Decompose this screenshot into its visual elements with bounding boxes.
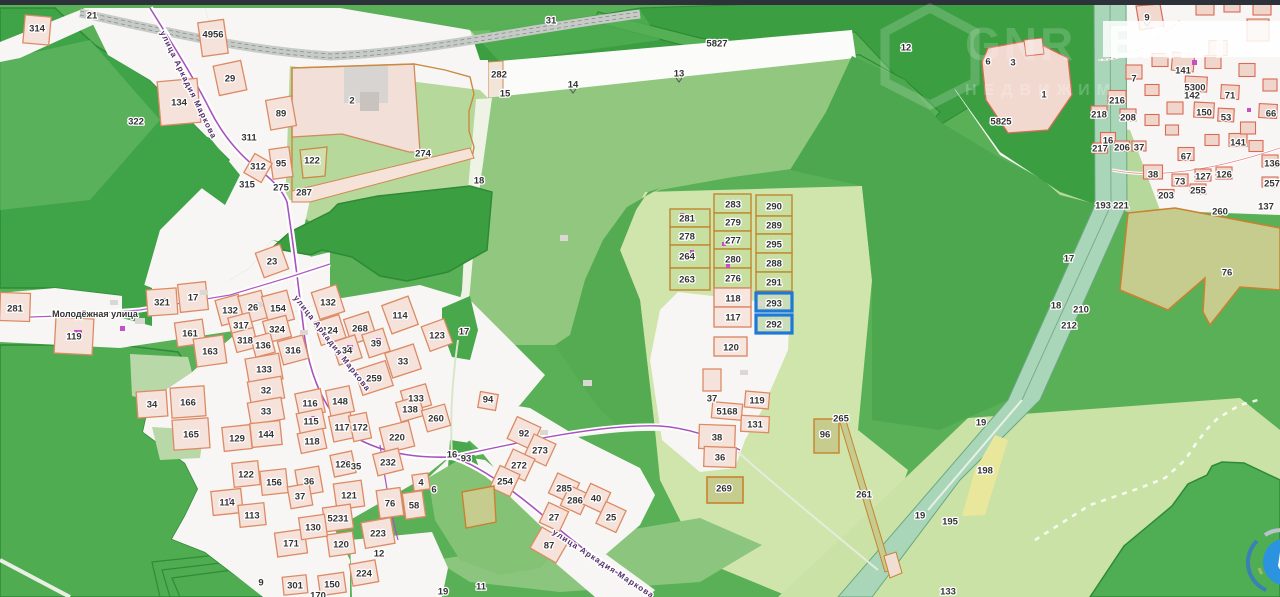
- svg-text:127: 127: [1195, 172, 1211, 183]
- svg-text:316: 316: [285, 346, 301, 357]
- svg-text:15: 15: [500, 89, 511, 100]
- svg-text:311: 311: [241, 133, 257, 144]
- svg-text:141: 141: [1230, 138, 1247, 149]
- svg-text:134: 134: [171, 98, 188, 109]
- svg-text:121: 121: [341, 491, 358, 502]
- svg-text:166: 166: [180, 398, 196, 409]
- svg-text:118: 118: [304, 437, 319, 448]
- svg-text:93: 93: [461, 454, 472, 465]
- svg-text:255: 255: [1190, 186, 1207, 197]
- svg-text:36: 36: [304, 477, 315, 488]
- svg-text:129: 129: [229, 434, 245, 445]
- svg-text:136: 136: [255, 341, 271, 352]
- svg-text:137: 137: [1258, 202, 1274, 213]
- svg-text:150: 150: [1196, 108, 1212, 119]
- svg-text:26: 26: [248, 303, 259, 314]
- svg-text:67: 67: [1181, 152, 1192, 163]
- svg-text:287: 287: [296, 188, 312, 199]
- svg-text:210: 210: [1073, 305, 1089, 316]
- svg-text:5231: 5231: [327, 514, 349, 525]
- svg-text:265: 265: [833, 414, 850, 425]
- svg-text:276: 276: [725, 274, 741, 285]
- svg-text:17: 17: [188, 293, 199, 304]
- svg-text:261: 261: [856, 490, 873, 501]
- svg-text:38: 38: [1148, 170, 1159, 181]
- svg-text:73: 73: [1175, 177, 1186, 188]
- svg-text:170: 170: [310, 591, 326, 597]
- svg-text:324: 324: [269, 325, 286, 336]
- svg-text:171: 171: [283, 539, 300, 550]
- svg-text:66: 66: [1266, 109, 1277, 120]
- svg-text:53: 53: [1221, 113, 1232, 124]
- svg-text:96: 96: [820, 430, 831, 441]
- svg-text:165: 165: [183, 430, 200, 441]
- svg-text:EALT: EALT: [1108, 16, 1237, 68]
- svg-text:317: 317: [233, 321, 249, 332]
- svg-text:172: 172: [352, 423, 368, 434]
- svg-text:130: 130: [305, 523, 321, 534]
- svg-text:114: 114: [392, 311, 408, 322]
- svg-text:132: 132: [222, 306, 238, 317]
- svg-text:131: 131: [747, 420, 764, 431]
- svg-text:203: 203: [1158, 191, 1174, 202]
- svg-text:17: 17: [1064, 254, 1075, 265]
- svg-text:156: 156: [266, 478, 282, 489]
- svg-text:5825: 5825: [990, 117, 1012, 128]
- svg-text:126: 126: [335, 460, 351, 471]
- svg-text:291: 291: [766, 278, 783, 289]
- svg-text:221: 221: [1113, 201, 1130, 212]
- svg-text:281: 281: [7, 304, 24, 315]
- svg-text:133: 133: [408, 394, 424, 405]
- svg-text:269: 269: [716, 484, 732, 495]
- svg-text:25: 25: [606, 513, 617, 524]
- svg-text:13: 13: [674, 69, 685, 80]
- svg-text:218: 218: [1091, 110, 1107, 121]
- svg-text:19: 19: [976, 418, 987, 429]
- svg-text:148: 148: [332, 397, 348, 408]
- svg-text:315: 315: [239, 180, 256, 191]
- svg-text:НЕДВИЖИМ: НЕДВИЖИМ: [965, 82, 1117, 99]
- svg-text:272: 272: [511, 461, 527, 472]
- svg-text:114: 114: [219, 498, 235, 509]
- svg-text:7: 7: [1131, 74, 1136, 85]
- svg-text:289: 289: [766, 221, 782, 232]
- svg-text:318: 318: [237, 336, 253, 347]
- svg-text:11: 11: [476, 582, 487, 593]
- svg-text:264: 264: [679, 252, 696, 263]
- svg-text:161: 161: [182, 329, 199, 340]
- svg-text:94: 94: [483, 395, 494, 406]
- svg-text:31: 31: [546, 16, 557, 27]
- svg-text:120: 120: [333, 540, 349, 551]
- svg-text:278: 278: [679, 232, 695, 243]
- svg-text:18: 18: [1051, 301, 1062, 312]
- svg-text:37: 37: [707, 394, 718, 405]
- svg-text:119: 119: [749, 396, 764, 407]
- svg-text:38: 38: [712, 433, 723, 444]
- svg-text:217: 217: [1092, 144, 1108, 155]
- svg-text:301: 301: [287, 581, 304, 592]
- svg-text:293: 293: [766, 299, 782, 310]
- svg-text:285: 285: [556, 484, 573, 495]
- svg-text:314: 314: [29, 24, 46, 35]
- svg-text:198: 198: [977, 466, 993, 477]
- svg-text:123: 123: [429, 331, 445, 342]
- svg-text:92: 92: [519, 429, 530, 440]
- svg-text:35: 35: [351, 462, 362, 473]
- svg-text:76: 76: [385, 499, 396, 510]
- svg-text:282: 282: [491, 70, 507, 81]
- svg-text:29: 29: [225, 74, 236, 85]
- svg-text:40: 40: [591, 494, 602, 505]
- svg-text:12: 12: [901, 43, 912, 54]
- svg-text:87: 87: [544, 541, 555, 552]
- svg-text:321: 321: [154, 298, 171, 309]
- svg-text:126: 126: [1216, 170, 1232, 181]
- svg-text:5168: 5168: [716, 407, 737, 418]
- svg-text:122: 122: [238, 470, 254, 481]
- svg-text:Молодёжная улица: Молодёжная улица: [52, 309, 139, 319]
- svg-text:132: 132: [320, 298, 336, 309]
- svg-text:89: 89: [276, 109, 287, 120]
- svg-text:95: 95: [276, 159, 287, 170]
- svg-text:257: 257: [1264, 179, 1280, 190]
- svg-text:34: 34: [147, 400, 158, 411]
- svg-text:260: 260: [428, 414, 444, 425]
- svg-text:273: 273: [532, 446, 548, 457]
- svg-text:115: 115: [303, 417, 319, 428]
- svg-text:36: 36: [715, 453, 726, 464]
- svg-text:117: 117: [334, 423, 349, 434]
- svg-text:295: 295: [766, 240, 783, 251]
- svg-text:32: 32: [261, 386, 272, 397]
- svg-text:17: 17: [459, 327, 470, 338]
- svg-text:150: 150: [324, 580, 340, 591]
- svg-text:212: 212: [1061, 321, 1077, 332]
- svg-text:206: 206: [1114, 143, 1130, 154]
- svg-text:18: 18: [474, 176, 485, 187]
- svg-text:23: 23: [267, 257, 278, 268]
- svg-text:292: 292: [766, 320, 782, 331]
- svg-text:279: 279: [725, 218, 741, 229]
- svg-text:220: 220: [389, 433, 405, 444]
- svg-text:6: 6: [431, 485, 436, 496]
- svg-text:208: 208: [1120, 113, 1136, 124]
- svg-text:274: 274: [415, 149, 432, 160]
- svg-text:144: 144: [258, 430, 275, 441]
- svg-text:275: 275: [273, 183, 290, 194]
- svg-text:37: 37: [1134, 143, 1145, 154]
- svg-text:312: 312: [250, 162, 266, 173]
- svg-text:193: 193: [1095, 201, 1111, 212]
- svg-text:280: 280: [725, 255, 741, 266]
- svg-text:260: 260: [1212, 207, 1228, 218]
- svg-text:19: 19: [438, 587, 449, 597]
- svg-text:27: 27: [549, 513, 560, 524]
- svg-text:277: 277: [725, 236, 741, 247]
- svg-text:5827: 5827: [706, 39, 727, 50]
- svg-text:19: 19: [915, 511, 926, 522]
- svg-text:133: 133: [940, 587, 956, 597]
- svg-text:138: 138: [402, 405, 418, 416]
- svg-text:290: 290: [766, 202, 782, 213]
- svg-text:254: 254: [497, 477, 514, 488]
- svg-text:9: 9: [258, 578, 263, 589]
- svg-text:154: 154: [270, 304, 287, 315]
- svg-text:117: 117: [725, 313, 740, 324]
- svg-text:223: 223: [370, 529, 386, 540]
- svg-text:119: 119: [66, 332, 81, 343]
- svg-text:136: 136: [1264, 159, 1280, 170]
- svg-text:37: 37: [295, 492, 306, 503]
- svg-text:4: 4: [418, 478, 424, 489]
- svg-text:142: 142: [1184, 91, 1200, 102]
- svg-text:76: 76: [1222, 268, 1233, 279]
- svg-text:118: 118: [725, 294, 740, 305]
- svg-text:71: 71: [1225, 91, 1236, 102]
- svg-text:232: 232: [380, 458, 396, 469]
- svg-text:21: 21: [87, 11, 98, 22]
- svg-text:281: 281: [679, 214, 696, 225]
- svg-text:163: 163: [202, 347, 218, 358]
- svg-text:122: 122: [304, 156, 320, 167]
- svg-text:14: 14: [568, 80, 579, 91]
- svg-text:133: 133: [256, 365, 272, 376]
- svg-text:195: 195: [942, 517, 959, 528]
- svg-text:263: 263: [679, 275, 695, 286]
- svg-text:120: 120: [723, 343, 739, 354]
- svg-text:113: 113: [244, 511, 259, 522]
- svg-text:268: 268: [352, 324, 368, 335]
- svg-text:224: 224: [356, 569, 373, 580]
- svg-text:286: 286: [567, 496, 583, 507]
- svg-text:33: 33: [261, 407, 272, 418]
- svg-text:283: 283: [725, 200, 741, 211]
- svg-text:GNR: GNR: [965, 18, 1076, 70]
- svg-text:33: 33: [398, 357, 409, 368]
- svg-text:2: 2: [349, 96, 354, 107]
- svg-text:116: 116: [302, 399, 317, 410]
- svg-text:4956: 4956: [202, 30, 223, 41]
- svg-text:288: 288: [766, 259, 782, 270]
- svg-text:58: 58: [409, 501, 420, 512]
- svg-text:322: 322: [128, 117, 144, 128]
- svg-text:12: 12: [374, 549, 385, 560]
- svg-text:39: 39: [371, 339, 382, 350]
- svg-text:16: 16: [447, 450, 458, 461]
